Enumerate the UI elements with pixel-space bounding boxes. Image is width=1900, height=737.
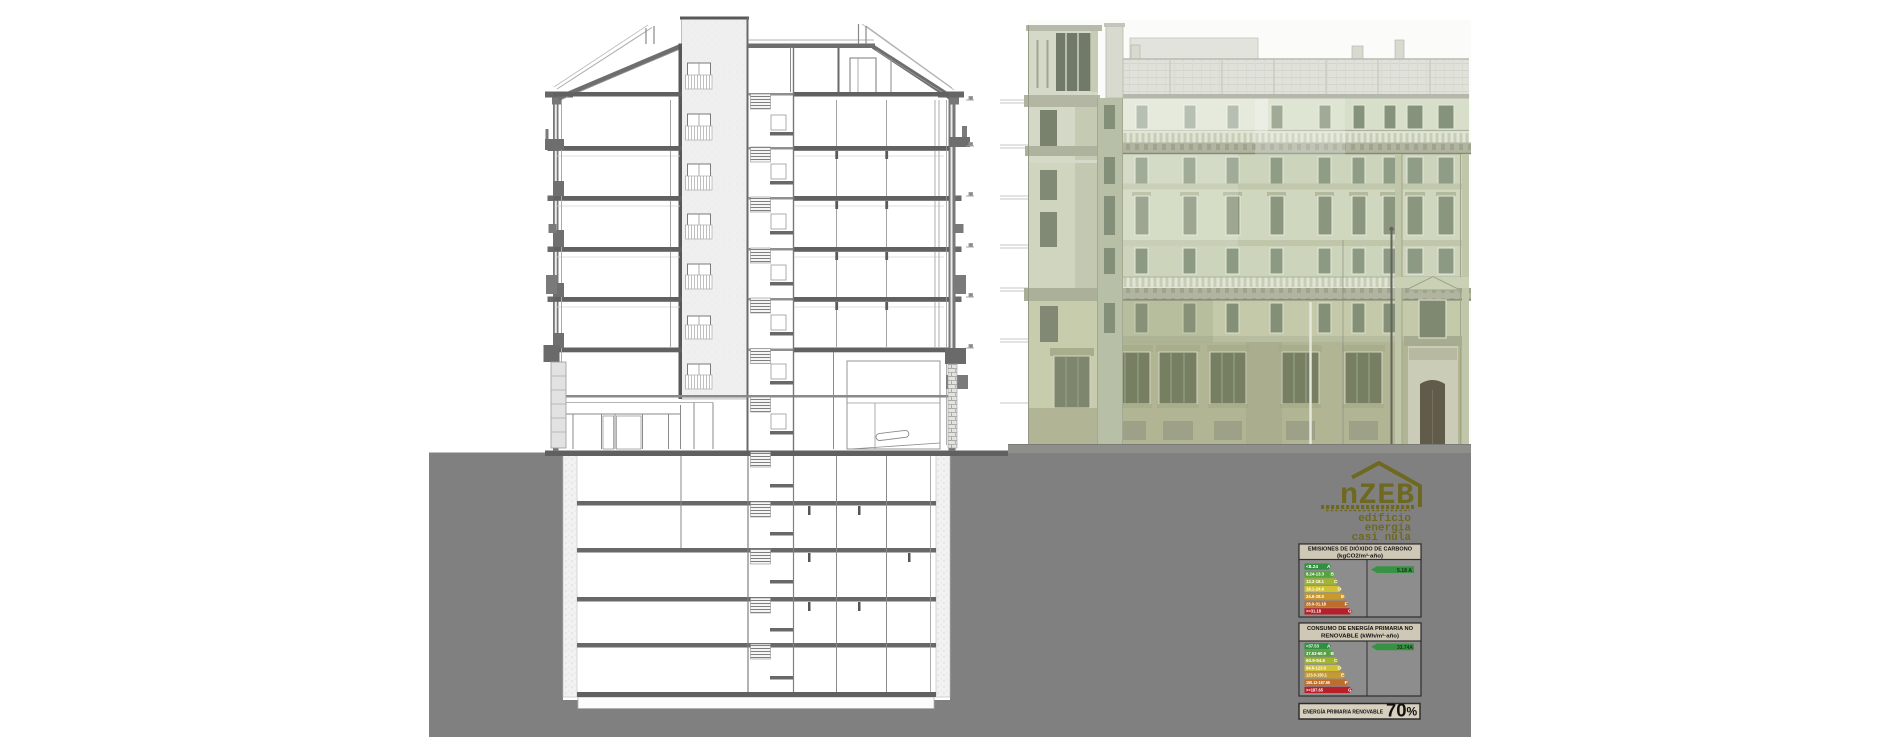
svg-text:G: G [1348, 609, 1352, 614]
svg-text:D: D [1338, 586, 1342, 591]
svg-text:28.0-31.18: 28.0-31.18 [1306, 601, 1327, 606]
svg-text:F: F [1345, 601, 1349, 606]
svg-text:CONSUMO DE ENERGÍA PRIMARIA N: CONSUMO DE ENERGÍA PRIMARIA NO [1307, 624, 1414, 632]
svg-text:123.0-150.1: 123.0-150.1 [1306, 673, 1328, 678]
svg-text:ENERGÍA PRIMARIA RENOVABLE: ENERGÍA PRIMARIA RENOVABLE [1303, 708, 1383, 716]
svg-text:D: D [1338, 665, 1342, 670]
svg-text:5.18 A: 5.18 A [1397, 568, 1412, 574]
svg-text:(kgCO2/m²·año): (kgCO2/m²·año) [1337, 554, 1383, 560]
svg-text:13.3-18.1: 13.3-18.1 [1306, 579, 1325, 584]
svg-text:A: A [1327, 564, 1331, 569]
svg-text:E: E [1341, 594, 1345, 599]
svg-text:60.9-94.6: 60.9-94.6 [1306, 658, 1326, 663]
svg-text:70: 70 [1386, 700, 1407, 721]
svg-text:EMISIONES DE DIÓXIDO DE CARBON: EMISIONES DE DIÓXIDO DE CARBONO [1308, 545, 1413, 553]
svg-text:B: B [1331, 572, 1335, 577]
svg-text:casi núla: casi núla [1352, 532, 1412, 544]
svg-text:A: A [1327, 644, 1331, 649]
svg-text:%: % [1407, 705, 1418, 719]
svg-text:C: C [1334, 579, 1338, 584]
svg-text:18.1-24.6: 18.1-24.6 [1306, 586, 1325, 591]
svg-text:24.6-28.0: 24.6-28.0 [1306, 594, 1325, 599]
svg-text:<37.53: <37.53 [1306, 644, 1320, 649]
svg-text:C: C [1334, 658, 1338, 663]
svg-text:37.53-60.9: 37.53-60.9 [1306, 651, 1327, 656]
svg-text:150.12-187.65: 150.12-187.65 [1306, 680, 1331, 685]
svg-text:F: F [1345, 680, 1349, 685]
svg-text:33.74A: 33.74A [1397, 645, 1413, 651]
svg-text:B: B [1331, 651, 1335, 656]
svg-text:<8.24: <8.24 [1306, 564, 1319, 569]
svg-text:E: E [1341, 673, 1345, 678]
svg-text:RENOVABLE (kWh/m²·año): RENOVABLE (kWh/m²·año) [1321, 633, 1399, 640]
svg-text:8.24-13.3: 8.24-13.3 [1306, 572, 1325, 577]
svg-text:94.6-123.0: 94.6-123.0 [1306, 665, 1327, 670]
svg-text:nZEB: nZEB [1340, 479, 1414, 513]
svg-text:>=187.65: >=187.65 [1306, 687, 1324, 692]
svg-text:G: G [1348, 687, 1352, 692]
svg-text:>=31.18: >=31.18 [1306, 609, 1322, 614]
